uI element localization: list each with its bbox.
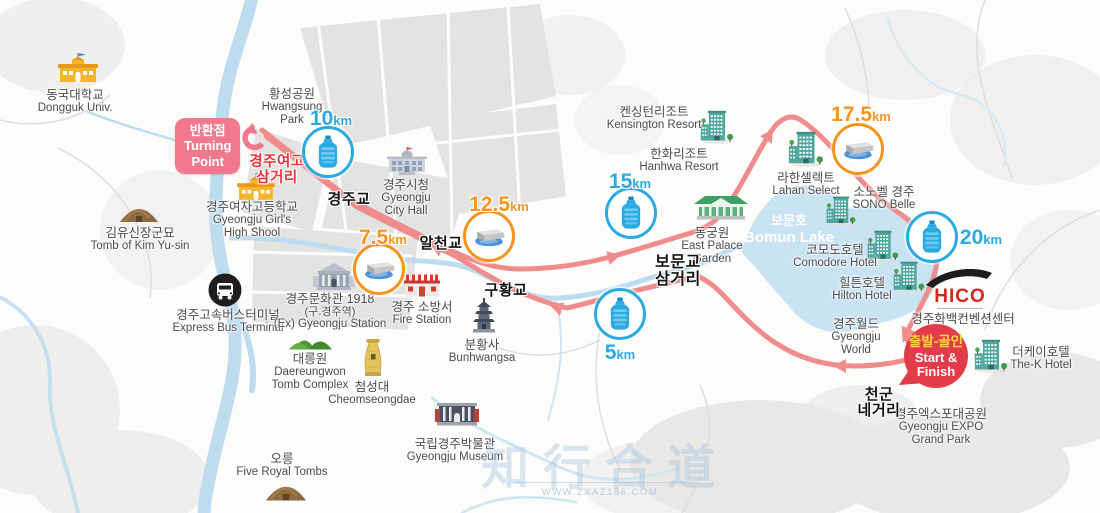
gyeongju-marathon-course-map: 5km 7.5km 10km 12.5km 15km 17.5km 20km 경… (0, 0, 1100, 513)
pagoda-icon (471, 298, 497, 336)
water-bottle-icon (619, 197, 643, 230)
old-station-icon (313, 263, 355, 291)
water-bottle-icon (316, 136, 340, 169)
fire-station-icon (404, 275, 440, 298)
landmark-cheomseongdae: 첨성대 Cheomseongdae (328, 380, 416, 407)
tomb-icon (119, 205, 159, 223)
bomun-lake-label: 보문호 Bomun Lake (744, 214, 834, 246)
turning-point-badge: 반환점 Turning Point (175, 118, 240, 174)
km-marker-15-label: 15km (609, 170, 651, 194)
km-marker-20-label: 20km (960, 226, 1002, 250)
sponge-icon (841, 138, 875, 160)
water-bottle-icon (608, 298, 632, 331)
hotel-building-icon (699, 109, 735, 145)
cheomseongdae-tower-icon (363, 339, 383, 377)
km-marker-5-label: 5km (605, 341, 635, 365)
landmark-girls-high-school: 경주여자고등학교 Gyeongju Girl's High Shool (206, 200, 298, 240)
km-marker-17-5-label: 17.5km (831, 103, 891, 127)
water-bottle-icon (920, 221, 944, 254)
water-station-20km (906, 211, 958, 263)
water-station-15km (605, 187, 657, 239)
landmark-hilton-hotel: 힐튼호텔 Hilton Hotel (832, 276, 891, 303)
landmark-city-hall: 경주시청 Gyeongju City Hall (381, 178, 430, 218)
bridge-label-guhwanggyo: 구황교 (485, 283, 528, 299)
tomb-park-hills-icon (289, 334, 335, 351)
turning-point-en2: Point (184, 154, 231, 169)
hico-logo-text: HICO (934, 286, 986, 308)
landmark-comodore-hotel: 코모도호텔 Comodore Hotel (793, 243, 877, 270)
landmark-bunhwangsa: 분황사 Bunhwangsa (449, 338, 516, 365)
km-marker-12-5-label: 12.5km (469, 193, 529, 217)
sponge-icon (472, 225, 506, 247)
sponge-station-12-5km (463, 210, 515, 262)
landmark-five-royal-tombs: 오릉 Five Royal Tombs (236, 452, 327, 479)
sponge-station-7-5km (353, 243, 405, 295)
landmark-gyeongju-museum: 국립경주박물관 Gyeongju Museum (407, 437, 504, 464)
school-icon (56, 52, 100, 84)
km-marker-10-label: 10km (310, 107, 352, 131)
start-finish-en2: Finish (904, 365, 968, 379)
km-marker-7-5-label: 7.5km (359, 226, 407, 250)
landmark-lahan-select: 라한셀렉트 Lahan Select (772, 171, 839, 198)
hico-logo-rule (937, 308, 983, 309)
start-finish-en1: Start & (904, 351, 968, 365)
sponge-station-17-5km (832, 123, 884, 175)
landmark-kensington-resort: 켄싱턴리조트 Kensington Resort (607, 105, 702, 132)
hotel-building-icon (892, 260, 926, 294)
turning-point-ko: 반환점 (184, 123, 231, 138)
junction-label-bomungyo-samgeori: 보문교 삼거리 (655, 254, 701, 289)
landmark-fire-station: 경주 소방서 Fire Station (392, 300, 453, 327)
bridge-label-gyeongjugyo: 경주교 (328, 192, 371, 208)
landmark-express-bus-terminal: 경주고속버스터미널 Express Bus Terminal (173, 308, 284, 335)
junction-label-yeogo-samgeori: 경주여고 삼거리 (249, 155, 304, 186)
landmark-gyeongju-world: 경주월드 Gyeongju World (831, 317, 880, 357)
city-hall-icon (386, 147, 428, 175)
bus-terminal-icon (208, 273, 242, 307)
hotel-building-icon (787, 130, 825, 168)
landmark-culture-hall-1918: 경주문화관 1918 (구.경주역) (Ex) Gyeongju Station (274, 292, 387, 331)
bridge-label-alcheongyo: 알천교 (420, 236, 463, 252)
tomb-icon (264, 483, 308, 502)
sponge-icon (362, 258, 396, 280)
start-finish-badge: 출발-골인 Start & Finish (891, 322, 979, 394)
landmark-dongguk-univ: 동국대학교 Dongguk Univ. (38, 88, 113, 115)
landmark-the-k-hotel: 더케이호텔 The-K Hotel (1010, 345, 1071, 372)
landmark-kim-yusin-tomb: 김유신장군묘 Tomb of Kim Yu-sin (91, 226, 190, 253)
museum-icon (435, 399, 479, 429)
landmark-hanhwa-resort: 한화리조트 Hanhwa Resort (639, 147, 718, 174)
turning-point-en1: Turning (184, 138, 231, 153)
landmark-gyeongju-expo-park: 경주엑스포대공원 Gyeongju EXPO Grand Park (895, 407, 987, 447)
water-station-10km (302, 126, 354, 178)
water-station-5km (594, 288, 646, 340)
start-finish-ko: 출발-골인 (904, 335, 968, 350)
landmark-sono-belle: 소노벨 경주 SONO Belle (853, 185, 916, 212)
east-palace-icon (694, 194, 748, 220)
